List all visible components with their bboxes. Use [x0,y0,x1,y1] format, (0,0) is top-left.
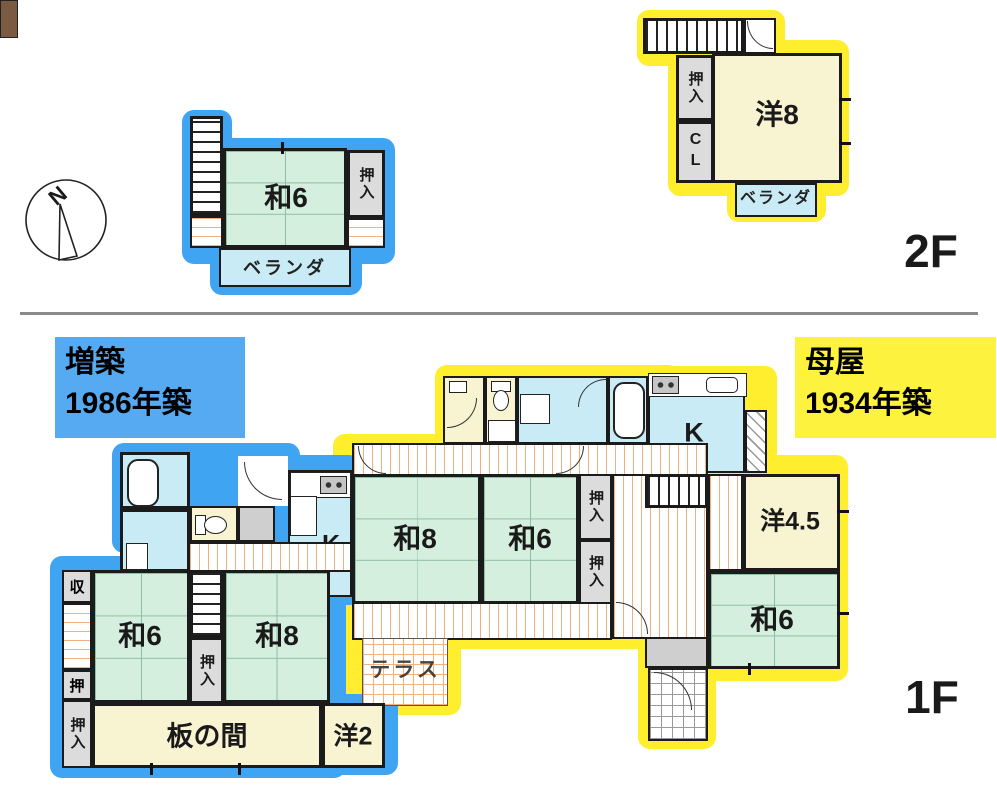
stove-icon [652,376,679,394]
room-label-wa6-2f: 和6 [264,184,308,212]
main-house-note-line1: 母屋 [805,343,986,384]
closet-oshiire-stairs: 押入 [190,638,223,703]
engawa-strip [347,218,385,248]
entrance-genkan-ext [238,506,275,542]
closet-label: 押入 [196,654,217,688]
closet-label: 押 [69,675,84,696]
hall-ext [188,542,352,572]
engawa-strip [190,216,223,248]
engawa-west [62,603,92,670]
washing-machine [520,394,550,424]
staircase [643,18,744,54]
veranda-label: ベランダ [243,259,327,277]
room-label-wa6-ext: 和6 [118,622,162,650]
closet-label: 押入 [685,71,706,105]
window-tick [238,763,241,775]
main-house-note: 母屋 1934年築 [795,337,996,438]
main-house-note-line2: 1934年築 [805,384,986,425]
closet-label: CL [686,131,704,173]
extension-note-line1: 増築 [65,343,235,384]
toilet-bowl [204,516,227,534]
closet-shu: 収 [62,570,92,603]
closet-cl-2f: CL [676,121,714,183]
closet-label: 押入 [67,717,88,751]
window-tick [837,612,849,615]
room-label-yo8-2f: 洋8 [755,101,799,129]
stove-icon [320,476,347,494]
closet-label: 収 [69,576,84,597]
room-label-yo2: 洋2 [334,725,373,750]
cabinet [488,420,516,442]
window-tick [839,142,851,145]
floor1-label: 1F [905,674,959,720]
closet-label: 押入 [356,167,377,201]
room-label-wa8-ext: 和8 [255,622,299,650]
corridor-north [352,443,708,476]
window-tick [281,142,284,154]
window-tick [839,98,851,101]
compass: N [22,176,112,266]
closet-oshiire-lower: 押入 [579,540,612,604]
engawa-south [352,602,612,640]
sink [449,381,467,393]
room-label-itanoma: 板の間 [167,724,248,751]
window-tick [748,663,751,675]
closet-oshiire-upper: 押入 [579,474,612,540]
kitchen-sink [706,377,738,393]
extension-note-line2: 1986年築 [65,384,235,425]
closet-oshiire-2f-yellow: 押入 [676,55,714,121]
window-tick [837,510,849,513]
closet-label: 押入 [585,555,606,589]
room-label-wa6-main: 和6 [508,525,552,553]
sink [126,543,148,570]
closet-label: 押入 [585,490,606,524]
floor-divider [20,312,978,315]
room-label-wa6-se: 和6 [750,606,794,634]
staircase [645,474,708,508]
extension-note: 増築 1986年築 [55,337,245,438]
floorplan-canvas: N ベランダ 和6 押入 押入 CL 洋8 ベランダ 2F 増築 1986年築 … [0,0,997,793]
kitchen-sink-cabinet [290,496,317,536]
closet-oshiire-west: 押入 [62,700,92,768]
window-tick [150,763,153,775]
staircase [190,570,223,638]
bathtub [127,459,159,507]
closet-oshi: 押 [62,670,92,700]
veranda-label: ベランダ [740,191,812,207]
compass-graphic [22,176,112,266]
vestibule [708,474,743,571]
room-label-yo45: 洋4.5 [760,510,820,535]
terrace-label: テラス [369,660,441,681]
bathtub [613,382,645,439]
entry-step [0,0,18,38]
floor2-label: 2F [904,228,958,274]
staircase [190,116,223,216]
closet-oshiire-2f-blue: 押入 [347,150,385,218]
storage-strip [745,410,767,473]
entrance-genkan [645,637,708,668]
room-label-wa8-main: 和8 [393,525,437,553]
toilet-bowl [493,390,509,411]
